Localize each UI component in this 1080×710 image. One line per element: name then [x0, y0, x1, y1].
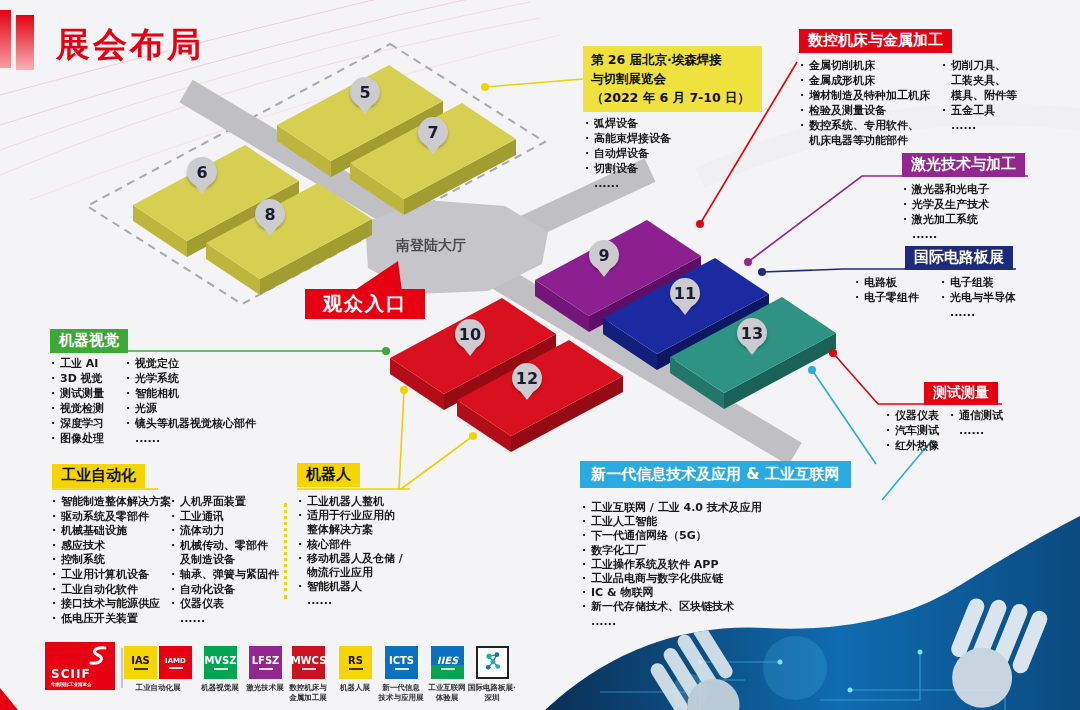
- test-items-col1: 仪器仪表汽车测试红外热像: [886, 408, 948, 453]
- list-item: 移动机器人及仓储 / 物流行业应用: [298, 552, 428, 580]
- section-title-it: 新一代信息技术及应用 & 工业互联网: [580, 461, 851, 488]
- list-item: ......: [126, 431, 276, 446]
- header-red-bar: [0, 10, 11, 68]
- list-item: ......: [941, 305, 1051, 320]
- list-item: 下一代通信网络（5G）: [582, 529, 872, 543]
- list-item: IC & 物联网: [582, 586, 872, 600]
- logo-ias: IAS: [124, 646, 157, 679]
- list-item: 仪器仪表: [171, 597, 291, 612]
- list-item: 接口技术与能源供应: [52, 597, 172, 612]
- list-item: 数控系统、专用软件、 机床电器等功能部件: [800, 118, 950, 148]
- list-item: 适用于行业应用的 整体解决方案: [298, 509, 428, 537]
- exhibition-layout-poster: 展会布局 南登陆大厅 观众入口 5 7 6 8 9 11 13 10 12 第 …: [0, 0, 1080, 710]
- list-item: 工业互联网 / 工业 4.0 技术及应用: [582, 501, 872, 515]
- list-item: 测试测量: [51, 386, 123, 401]
- logo-pcb-shenzhen: [476, 646, 509, 679]
- list-item: 红外热像: [886, 438, 948, 453]
- list-item: 图像处理: [51, 431, 123, 446]
- yellow-dotted-divider: [284, 503, 287, 599]
- south-landing-hall-label: 南登陆大厅: [396, 237, 466, 255]
- robot-items: 工业机器人整机适用于行业应用的 整体解决方案核心部件移动机器人及仓储 / 物流行…: [298, 495, 428, 609]
- list-item: ......: [950, 423, 1020, 438]
- logo-iies: IIES: [431, 646, 464, 679]
- list-item: 数字化工厂: [582, 544, 872, 558]
- list-item: 视觉定位: [126, 356, 276, 371]
- logo-separator: [121, 648, 123, 688]
- list-item: ......: [582, 615, 872, 629]
- list-item: 智能机器人: [298, 580, 428, 594]
- test-items-col2: 通信测试......: [950, 408, 1020, 438]
- list-item: 切削刀具、 工装夹具、 模具、附件等: [942, 58, 1062, 103]
- entrance-label: 观众入口: [305, 289, 425, 319]
- list-item: 工业自动化软件: [52, 583, 172, 598]
- logo-mvsz: MVSZ: [204, 646, 237, 679]
- list-item: 仪器仪表: [886, 408, 948, 423]
- list-item: 机械传动、零部件 及制造设备: [171, 539, 291, 568]
- hall-pin-8: 8: [255, 199, 285, 229]
- list-item: 机械基础设施: [52, 524, 172, 539]
- list-item: 金属成形机床: [800, 73, 950, 88]
- list-item: 工业通讯: [171, 510, 291, 525]
- list-item: 光源: [126, 401, 276, 416]
- logo-mwcs: MWCS: [292, 646, 325, 679]
- list-item: 光学及生产技术: [903, 197, 1043, 212]
- list-item: 工业机器人整机: [298, 495, 428, 509]
- corner-red-triangle: [0, 688, 18, 710]
- list-item: 工业品电商与数字化供应链: [582, 572, 872, 586]
- sciif-logo-subtext: 华南国际工业博览会: [51, 682, 92, 687]
- page-title: 展会布局: [56, 22, 204, 68]
- sciif-logo-text: SCIIF: [51, 667, 91, 681]
- section-title-vision: 机器视觉: [50, 329, 128, 353]
- list-item: 汽车测试: [886, 423, 948, 438]
- list-item: 新一代存储技术、区块链技术: [582, 600, 872, 614]
- hall-pin-7: 7: [418, 117, 448, 147]
- list-item: 感应技术: [52, 539, 172, 554]
- list-item: 电子组装: [941, 275, 1051, 290]
- list-item: 智能制造整体解决方案: [52, 495, 172, 510]
- welding-items: 弧焊设备高能束焊接设备自动焊设备切割设备......: [585, 116, 735, 191]
- list-item: 高能束焊接设备: [585, 131, 735, 146]
- list-item: 自动焊设备: [585, 146, 735, 161]
- list-item: 检验及测量设备: [800, 103, 950, 118]
- list-item: 智能相机: [126, 386, 276, 401]
- list-item: 激光器和光电子: [903, 182, 1043, 197]
- list-item: 通信测试: [950, 408, 1020, 423]
- list-item: 工业人工智能: [582, 515, 872, 529]
- list-item: 光电与半导体: [941, 290, 1051, 305]
- section-title-robot: 机器人: [297, 463, 360, 487]
- section-title-pcb: 国际电路板展: [905, 246, 1013, 270]
- automation-items-col2: 人机界面装置工业通讯流体动力机械传动、零部件 及制造设备轴承、弹簧与紧固件自动化…: [171, 495, 291, 626]
- header-red-bar: [16, 15, 34, 70]
- list-item: ......: [903, 227, 1043, 242]
- list-item: ......: [171, 612, 291, 627]
- list-item: 激光加工系统: [903, 212, 1043, 227]
- section-title-automation: 工业自动化: [52, 464, 145, 488]
- sciif-logo: SCIIF 华南国际工业博览会: [45, 642, 115, 690]
- list-item: 切割设备: [585, 161, 735, 176]
- list-item: 深度学习: [51, 416, 123, 431]
- list-item: 工业操作系统及软件 APP: [582, 558, 872, 572]
- list-item: 金属切削机床: [800, 58, 950, 73]
- logo-label: 国际电路板展· 深圳: [454, 683, 530, 703]
- list-item: 镜头等机器视觉核心部件: [126, 416, 276, 431]
- list-item: 增材制造及特种加工机床: [800, 88, 950, 103]
- it-items: 工业互联网 / 工业 4.0 技术及应用工业人工智能下一代通信网络（5G）数字化…: [582, 501, 872, 629]
- section-title-cnc: 数控机床与金属加工: [799, 29, 952, 53]
- molecule-icon: [482, 650, 504, 672]
- section-title-test: 测试测量: [924, 382, 998, 405]
- list-item: 控制系统: [52, 553, 172, 568]
- hall-pin-6: 6: [187, 157, 217, 187]
- list-item: ......: [298, 594, 428, 608]
- list-item: 自动化设备: [171, 583, 291, 598]
- logo-icts: ICTS: [385, 646, 418, 679]
- list-item: 电路板: [855, 275, 935, 290]
- pcb-items-col1: 电路板电子零组件: [855, 275, 935, 305]
- pcb-items-col2: 电子组装光电与半导体......: [941, 275, 1051, 320]
- list-item: 五金工具: [942, 103, 1062, 118]
- list-item: 3D 视觉: [51, 371, 123, 386]
- list-item: 电子零组件: [855, 290, 935, 305]
- list-item: 工业 AI: [51, 356, 123, 371]
- list-item: 工业用计算机设备: [52, 568, 172, 583]
- section-title-laser: 激光技术与加工: [902, 153, 1025, 177]
- hall-pin-10: 10: [455, 319, 485, 349]
- list-item: 流体动力: [171, 524, 291, 539]
- list-item: 核心部件: [298, 538, 428, 552]
- hall-pin-11: 11: [670, 278, 700, 308]
- cnc-items-col1: 金属切削机床金属成形机床增材制造及特种加工机床检验及测量设备数控系统、专用软件、…: [800, 58, 950, 148]
- laser-items: 激光器和光电子光学及生产技术激光加工系统......: [903, 182, 1043, 242]
- list-item: 视觉检测: [51, 401, 123, 416]
- list-item: ......: [942, 118, 1062, 133]
- welding-expo-title: 第 26 届北京·埃森焊接 与切割展览会 （2022 年 6 月 7-10 日）: [583, 46, 762, 112]
- list-item: 驱动系统及零部件: [52, 510, 172, 525]
- hall-pin-5: 5: [350, 77, 380, 107]
- list-item: 弧焊设备: [585, 116, 735, 131]
- automation-items-col1: 智能制造整体解决方案驱动系统及零部件机械基础设施感应技术控制系统工业用计算机设备…: [52, 495, 172, 626]
- logo-lfsz: LFSZ: [249, 646, 282, 679]
- vision-items-col2: 视觉定位光学系统智能相机光源镜头等机器视觉核心部件......: [126, 356, 276, 446]
- hall-pin-9: 9: [589, 240, 619, 270]
- logo-iamd: IAMD: [159, 646, 192, 679]
- list-item: 低电压开关装置: [52, 612, 172, 627]
- list-item: ......: [585, 176, 735, 191]
- sciif-swoosh-icon: [87, 645, 109, 667]
- list-item: 轴承、弹簧与紧固件: [171, 568, 291, 583]
- hall-pin-12: 12: [512, 363, 542, 393]
- vision-items-col1: 工业 AI3D 视觉测试测量视觉检测深度学习图像处理: [51, 356, 123, 446]
- cnc-items-col2: 切削刀具、 工装夹具、 模具、附件等五金工具......: [942, 58, 1062, 133]
- logo-rs: RS: [339, 646, 372, 679]
- list-item: 人机界面装置: [171, 495, 291, 510]
- hall-pin-13: 13: [737, 318, 767, 348]
- list-item: 光学系统: [126, 371, 276, 386]
